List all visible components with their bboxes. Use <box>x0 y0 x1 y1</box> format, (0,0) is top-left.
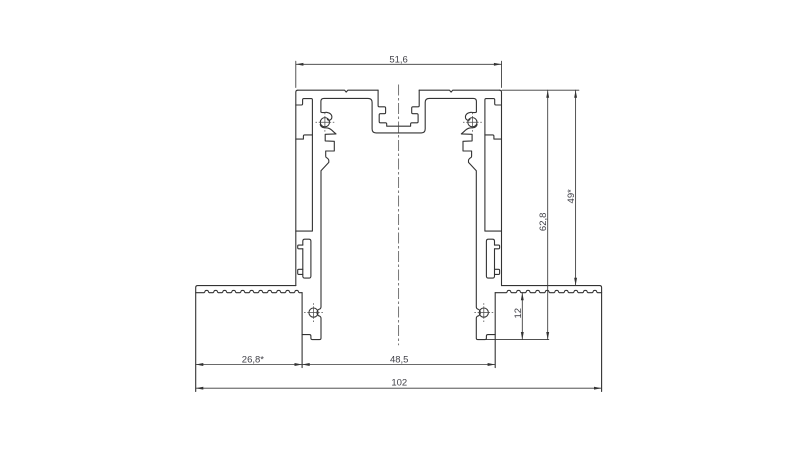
svg-text:12: 12 <box>513 308 524 319</box>
svg-text:49*: 49* <box>566 189 577 204</box>
svg-text:62,8: 62,8 <box>538 213 549 232</box>
svg-text:102: 102 <box>391 378 407 389</box>
svg-text:51,6: 51,6 <box>389 54 408 65</box>
svg-text:26,8*: 26,8* <box>242 354 264 365</box>
svg-text:48,5: 48,5 <box>390 354 409 365</box>
